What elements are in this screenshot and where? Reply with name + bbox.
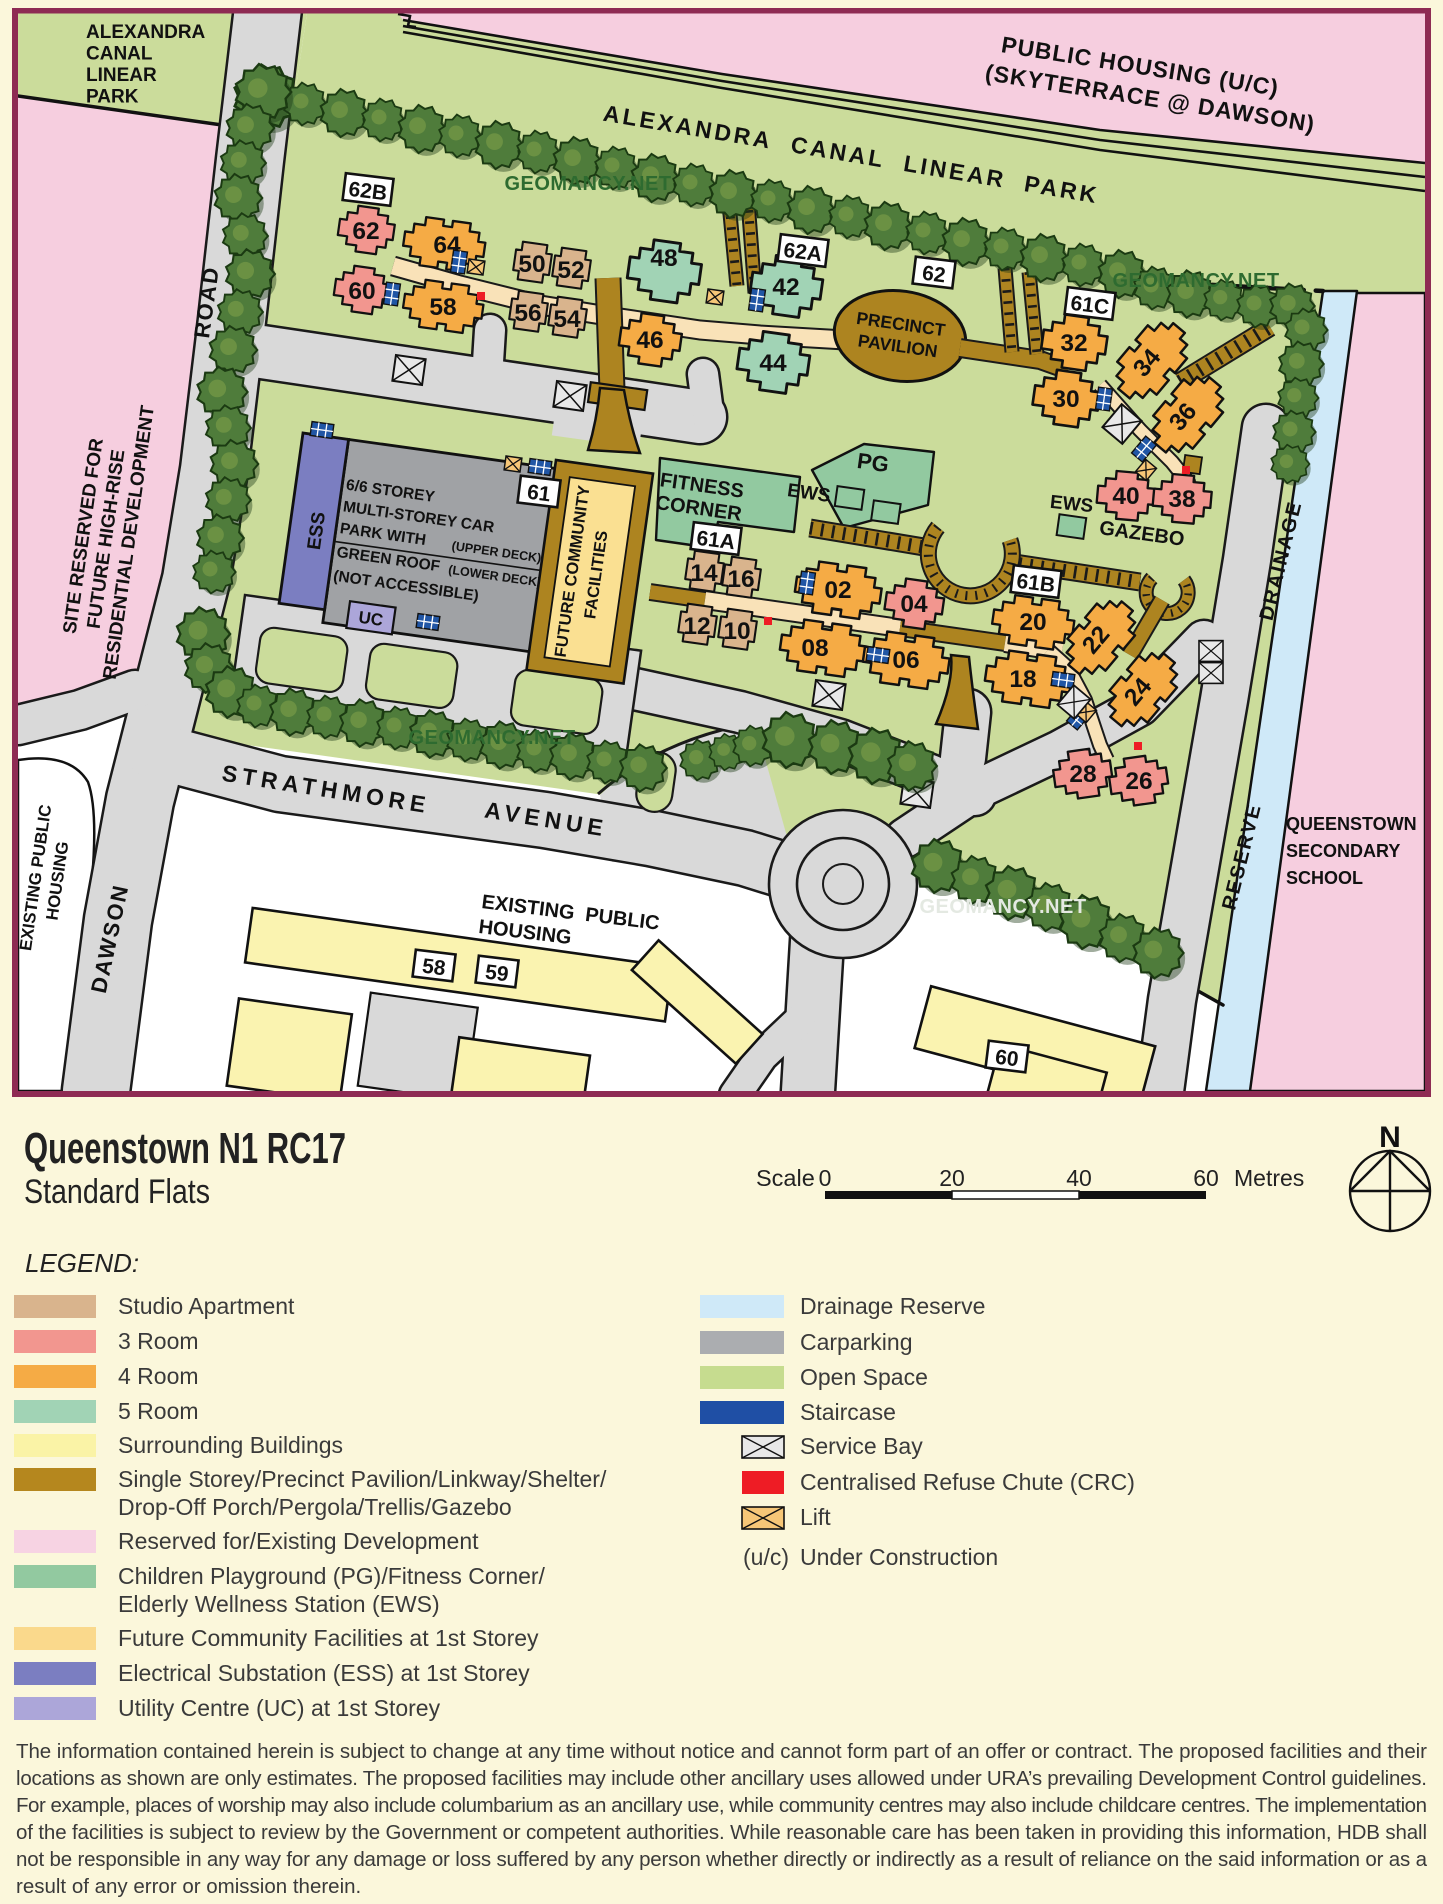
svg-text:44: 44: [759, 350, 787, 377]
svg-text:62: 62: [352, 218, 379, 245]
svg-text:60: 60: [994, 1046, 1020, 1072]
svg-text:Drop-Off Porch/Pergola/Trellis: Drop-Off Porch/Pergola/Trellis/Gazebo: [118, 1494, 512, 1520]
svg-text:Standard Flats: Standard Flats: [24, 1173, 210, 1211]
svg-text:GEOMANCY.NET: GEOMANCY.NET: [1112, 270, 1279, 292]
svg-text:of the facilities is subject t: of the facilities is subject to review b…: [16, 1821, 1427, 1844]
svg-text:Studio Apartment: Studio Apartment: [118, 1293, 295, 1319]
svg-text:Utility Centre (UC) at 1st Sto: Utility Centre (UC) at 1st Storey: [118, 1695, 441, 1721]
svg-text:06: 06: [892, 647, 919, 674]
svg-text:Reserved for/Existing Developm: Reserved for/Existing Development: [118, 1528, 479, 1554]
svg-text:42: 42: [772, 274, 799, 301]
svg-text:Queenstown N1 RC17: Queenstown N1 RC17: [24, 1124, 346, 1173]
svg-text:54: 54: [553, 306, 581, 333]
svg-text:16: 16: [727, 566, 754, 593]
svg-text:Open Space: Open Space: [800, 1364, 928, 1390]
svg-text:0: 0: [819, 1165, 832, 1191]
svg-text:not be responsible in any way: not be responsible in any way for any da…: [16, 1848, 1428, 1871]
svg-text:32: 32: [1060, 330, 1087, 357]
svg-text:Children Playground (PG)/Fitne: Children Playground (PG)/Fitness Corner/: [118, 1563, 546, 1589]
svg-text:(u/c): (u/c): [743, 1544, 789, 1570]
svg-text:result of any error or omissio: result of any error or omission therein.: [16, 1875, 361, 1898]
svg-text:18: 18: [1009, 666, 1036, 693]
svg-text:59: 59: [484, 961, 510, 987]
svg-text:20: 20: [939, 1165, 965, 1191]
svg-text:61A: 61A: [695, 527, 736, 555]
svg-text:GEOMANCY.NET: GEOMANCY.NET: [504, 173, 671, 195]
svg-text:UC: UC: [357, 608, 384, 630]
svg-text:10: 10: [723, 618, 750, 645]
svg-text:28: 28: [1069, 761, 1096, 788]
svg-text:LEGEND:: LEGEND:: [25, 1248, 139, 1278]
svg-text:62A: 62A: [782, 239, 823, 267]
svg-text:56: 56: [514, 300, 541, 327]
svg-text:4 Room: 4 Room: [118, 1363, 199, 1389]
svg-text:26: 26: [1125, 768, 1152, 795]
svg-text:The information contained here: The information contained herein is subj…: [16, 1740, 1427, 1763]
svg-text:46: 46: [636, 327, 663, 354]
svg-text:SCHOOL: SCHOOL: [1286, 868, 1363, 888]
svg-text:62B: 62B: [347, 178, 388, 206]
svg-text:For example, places of worship: For example, places of worship may also …: [16, 1794, 1427, 1817]
svg-text:GEOMANCY.NET: GEOMANCY.NET: [919, 896, 1086, 918]
svg-text:61: 61: [526, 481, 552, 507]
svg-text:Centralised Refuse Chute (CRC): Centralised Refuse Chute (CRC): [800, 1469, 1135, 1495]
svg-text:5 Room: 5 Room: [118, 1398, 199, 1424]
svg-text:58: 58: [429, 294, 456, 321]
svg-text:Surrounding Buildings: Surrounding Buildings: [118, 1432, 343, 1458]
svg-text:20: 20: [1019, 609, 1046, 636]
svg-text:EWS: EWS: [1049, 492, 1094, 517]
svg-text:60: 60: [348, 278, 375, 305]
svg-text:PG: PG: [856, 448, 891, 477]
svg-text:QUEENSTOWN: QUEENSTOWN: [1286, 814, 1417, 834]
svg-text:52: 52: [557, 257, 584, 284]
svg-text:61B: 61B: [1015, 570, 1056, 598]
svg-text:04: 04: [900, 591, 928, 618]
svg-text:40: 40: [1066, 1165, 1092, 1191]
svg-text:12: 12: [683, 613, 710, 640]
svg-text:Single Storey/Precinct Pavilio: Single Storey/Precinct Pavilion/Linkway/…: [118, 1466, 607, 1492]
svg-text:58: 58: [421, 955, 447, 981]
svg-text:Future Community Facilities at: Future Community Facilities at 1st Store…: [118, 1625, 539, 1651]
svg-text:14: 14: [690, 560, 718, 587]
svg-text:02: 02: [824, 577, 851, 604]
svg-text:60: 60: [1193, 1165, 1219, 1191]
svg-text:SECONDARY: SECONDARY: [1286, 841, 1400, 861]
svg-text:38: 38: [1168, 486, 1195, 513]
svg-text:Service Bay: Service Bay: [800, 1433, 923, 1459]
svg-text:Elderly Wellness Station (EWS): Elderly Wellness Station (EWS): [118, 1591, 440, 1617]
svg-text:LINEAR: LINEAR: [86, 65, 157, 86]
svg-text:62: 62: [921, 262, 947, 288]
svg-text:40: 40: [1112, 483, 1139, 510]
svg-text:61C: 61C: [1069, 292, 1110, 320]
svg-text:3 Room: 3 Room: [118, 1328, 199, 1354]
svg-text:50: 50: [518, 251, 545, 278]
svg-text:ALEXANDRA: ALEXANDRA: [86, 22, 206, 43]
svg-text:Carparking: Carparking: [800, 1329, 913, 1355]
svg-text:Scale: Scale: [756, 1165, 815, 1191]
svg-text:GEOMANCY.NET: GEOMANCY.NET: [408, 727, 575, 749]
svg-text:N: N: [1379, 1121, 1401, 1154]
svg-text:48: 48: [650, 245, 677, 272]
svg-text:Staircase: Staircase: [800, 1399, 896, 1425]
svg-text:Under Construction: Under Construction: [800, 1544, 998, 1570]
svg-text:CANAL: CANAL: [86, 44, 153, 65]
svg-text:locations as shown are only es: locations as shown are only estimates. T…: [16, 1767, 1427, 1790]
svg-text:Metres: Metres: [1234, 1165, 1304, 1191]
svg-text:Electrical Substation (ESS) at: Electrical Substation (ESS) at 1st Store…: [118, 1660, 530, 1686]
svg-text:PARK: PARK: [86, 87, 139, 108]
svg-text:Lift: Lift: [800, 1504, 831, 1530]
svg-text:30: 30: [1052, 386, 1079, 413]
svg-text:08: 08: [801, 635, 828, 662]
svg-text:Drainage Reserve: Drainage Reserve: [800, 1293, 985, 1319]
